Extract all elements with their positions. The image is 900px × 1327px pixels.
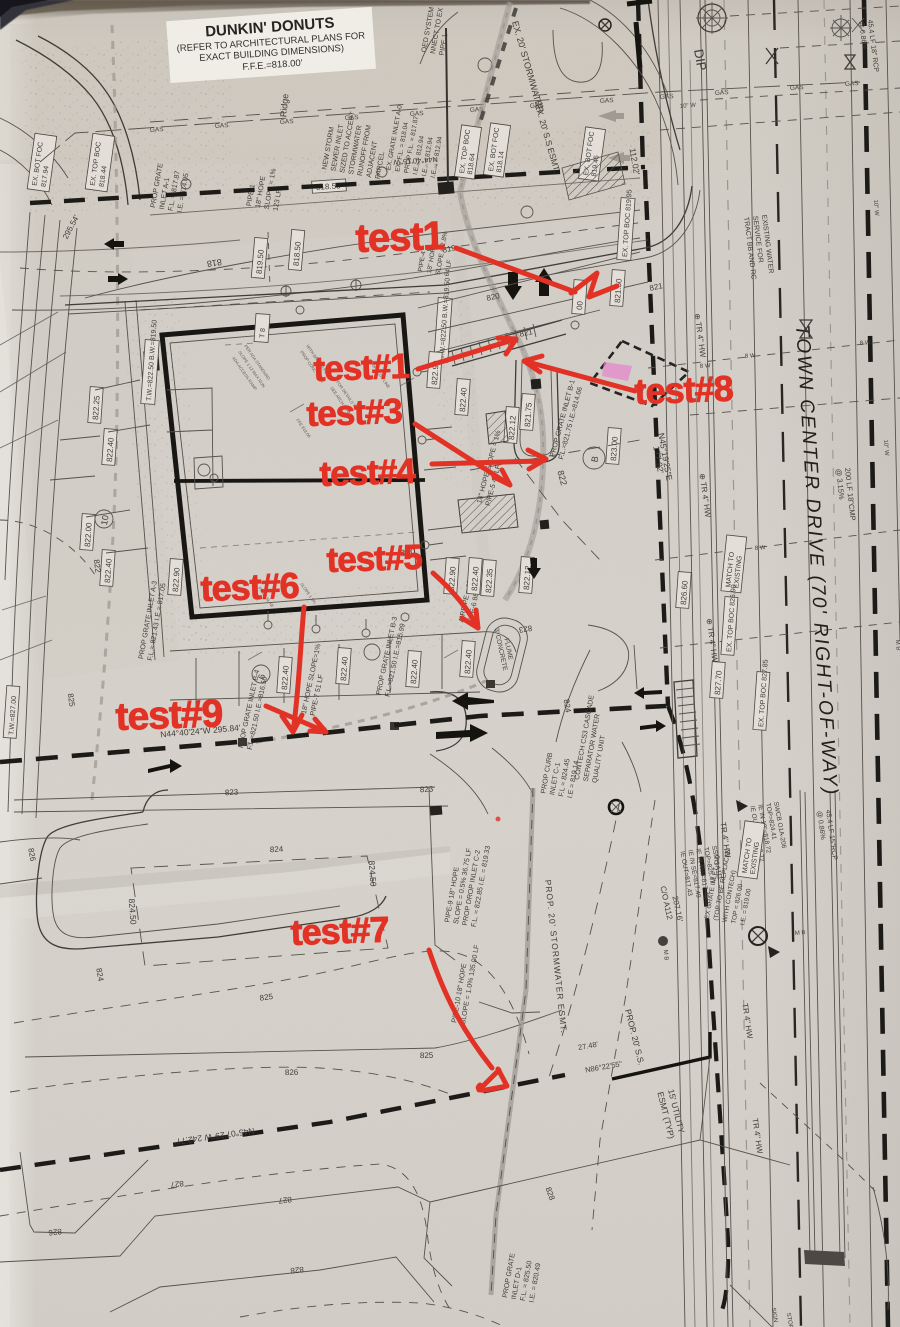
svg-text:test#9: test#9 [115, 692, 223, 739]
svg-text:821.50: 821.50 [613, 278, 624, 304]
svg-text:826.60: 826.60 [679, 580, 690, 606]
svg-text:8 W: 8 W [745, 353, 756, 360]
svg-text:821.75: 821.75 [523, 402, 534, 428]
svg-text:822.40: 822.40 [103, 558, 114, 584]
svg-text:GAS: GAS [150, 126, 165, 134]
svg-text:M B: M B [894, 639, 900, 650]
svg-text:818: 818 [206, 257, 222, 269]
svg-text:828: 828 [289, 1265, 304, 1275]
svg-text:824: 824 [270, 845, 284, 855]
svg-text:GAS: GAS [280, 118, 295, 126]
svg-text:825: 825 [420, 1051, 434, 1060]
svg-text:827: 827 [277, 1195, 292, 1205]
svg-text:test#4: test#4 [319, 452, 417, 494]
svg-text:822.90: 822.90 [171, 567, 182, 593]
svg-text:822.40: 822.40 [463, 649, 474, 675]
svg-text:827: 827 [169, 1179, 184, 1189]
svg-text:822.40: 822.40 [339, 656, 350, 682]
svg-text:822: 822 [92, 559, 103, 574]
svg-text:8 W: 8 W [860, 340, 871, 347]
svg-text:Ridge: Ridge [278, 93, 290, 117]
svg-text:822.25: 822.25 [91, 395, 102, 421]
svg-text:827.70: 827.70 [713, 670, 724, 696]
svg-text:823: 823 [420, 785, 434, 795]
svg-text:test#5: test#5 [326, 538, 423, 580]
svg-text:GAS: GAS [600, 97, 615, 105]
svg-text:822.12: 822.12 [507, 415, 518, 441]
svg-text:826: 826 [47, 1227, 62, 1237]
svg-text:823.00: 823.00 [609, 436, 620, 462]
svg-text:822.40: 822.40 [409, 659, 420, 685]
svg-text:test#1: test#1 [313, 347, 410, 389]
svg-text:824.50: 824.50 [367, 860, 379, 887]
svg-text:GAS: GAS [345, 114, 360, 122]
svg-text:822.40: 822.40 [105, 437, 116, 463]
svg-text:825: 825 [66, 693, 77, 708]
svg-text:824.50: 824.50 [127, 898, 139, 925]
svg-text:M B: M B [795, 930, 806, 937]
svg-text:826: 826 [285, 1068, 299, 1077]
svg-text:822.40: 822.40 [458, 387, 469, 413]
svg-text:8 W: 8 W [755, 545, 766, 552]
svg-text:test#7: test#7 [290, 909, 389, 953]
svg-text:GAS: GAS [715, 89, 730, 97]
svg-text:10: 10 [99, 514, 111, 526]
svg-text:825: 825 [259, 992, 274, 1003]
svg-text:test#8: test#8 [634, 368, 733, 412]
svg-text:822.00: 822.00 [83, 522, 94, 548]
svg-text:GAS: GAS [845, 80, 860, 88]
svg-text:822.40: 822.40 [470, 566, 481, 592]
svg-text:822.40: 822.40 [280, 665, 291, 691]
svg-text:M B: M B [662, 949, 669, 960]
svg-text:test1: test1 [355, 214, 446, 261]
svg-text:823: 823 [225, 788, 239, 798]
svg-text:00: 00 [575, 300, 585, 310]
svg-text:test#6: test#6 [200, 565, 299, 609]
svg-text:822.35: 822.35 [484, 568, 495, 594]
svg-text:GAS: GAS [215, 122, 230, 130]
svg-text:GAS: GAS [790, 84, 805, 92]
svg-text:T 8: T 8 [259, 328, 267, 339]
svg-text:test#3: test#3 [306, 392, 403, 434]
